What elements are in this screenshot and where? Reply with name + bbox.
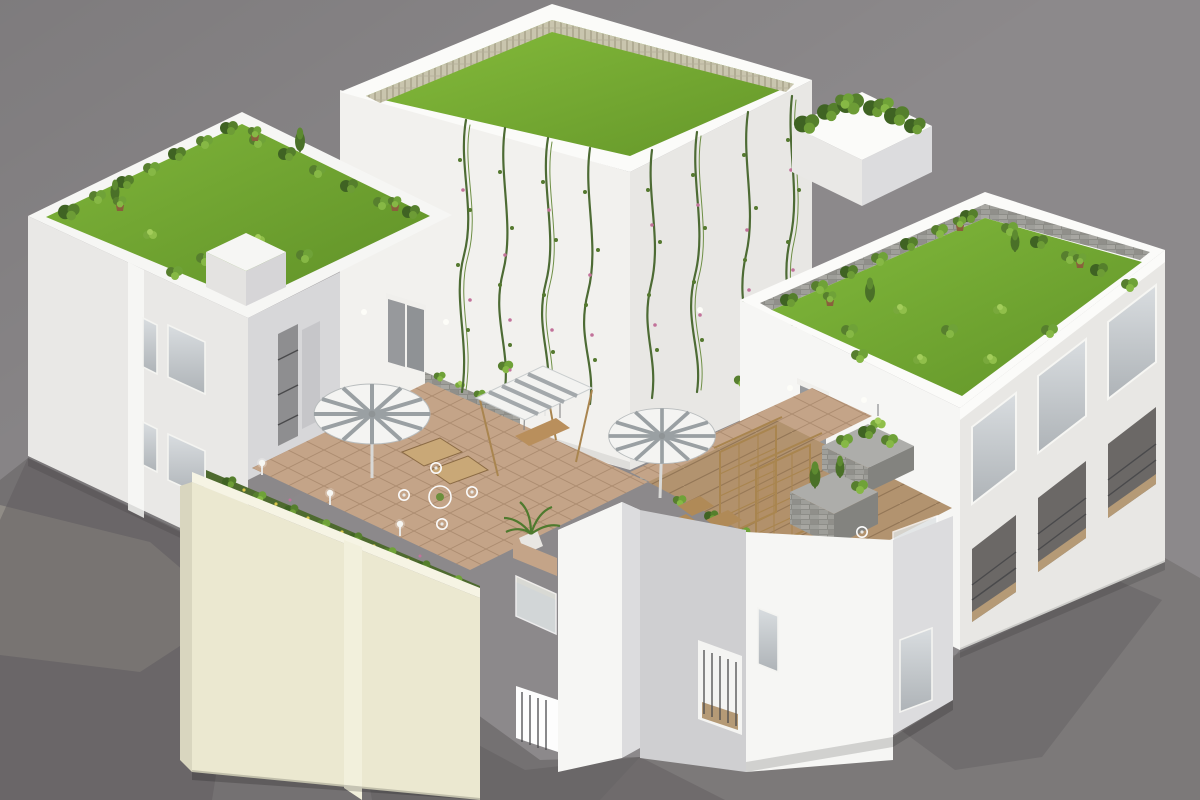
stair-opening bbox=[278, 324, 298, 446]
recessed-balcony bbox=[698, 640, 742, 735]
terrace-door-right bbox=[407, 305, 424, 372]
isometric-scene bbox=[0, 0, 1200, 800]
terrace-door-left bbox=[388, 299, 405, 367]
wall-sconce-icon bbox=[697, 307, 703, 313]
window bbox=[758, 608, 778, 672]
parapet-step bbox=[344, 540, 362, 800]
parapet-end-cap bbox=[180, 482, 192, 772]
rendering-canvas bbox=[0, 0, 1200, 800]
tower-side-face bbox=[622, 502, 640, 758]
tower-front-face bbox=[558, 502, 622, 772]
window bbox=[143, 318, 157, 374]
recessed-wall bbox=[640, 510, 746, 772]
wall-sconce-icon bbox=[361, 309, 367, 315]
table-plant bbox=[436, 493, 444, 501]
parasol bbox=[609, 408, 716, 463]
glass-door bbox=[900, 628, 932, 712]
facade-pilaster bbox=[128, 262, 144, 518]
wall-sconce-icon bbox=[443, 319, 449, 325]
front-towers bbox=[513, 502, 953, 772]
window bbox=[143, 422, 157, 472]
wall-sconce-icon bbox=[787, 385, 793, 391]
wall-sconce-icon bbox=[861, 397, 867, 403]
parasol bbox=[314, 384, 430, 444]
